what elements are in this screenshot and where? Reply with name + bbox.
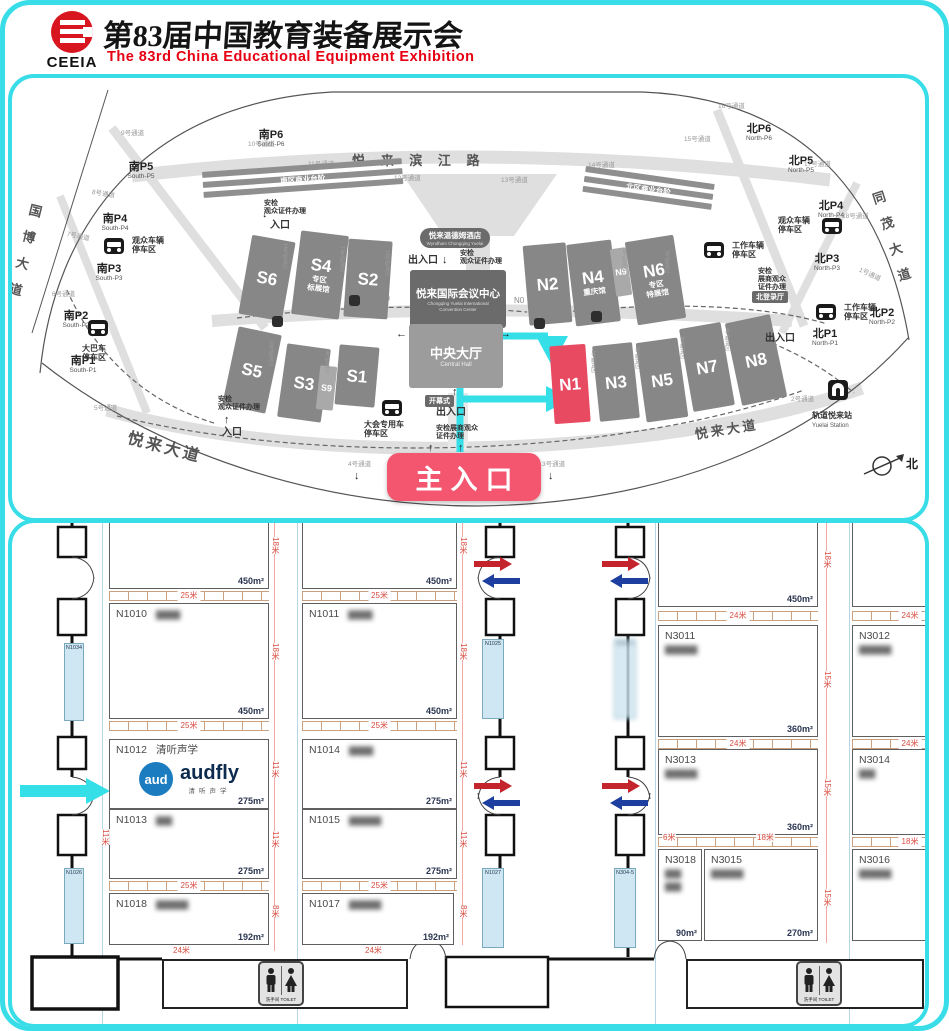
shuttle-stop-icon: [349, 295, 360, 306]
facility-label: 观众车辆 停车区: [132, 236, 164, 254]
booth-number: N1012: [116, 744, 147, 757]
booth-label-row: N1010▆▆▆: [116, 608, 180, 621]
toilet-sign-divider: [281, 966, 282, 995]
map-item: [267, 975, 276, 985]
direction-arrow: ↓: [262, 208, 268, 221]
booth-N3013: N3013▆▆▆▆360m²: [658, 749, 818, 835]
dimension-label: 18米: [822, 551, 832, 568]
hall-n0-label: N0: [514, 296, 524, 305]
map-item: [707, 252, 711, 256]
booth-label-row: N1017▆▆▆▆: [309, 898, 381, 911]
parking-cn-label: 南P5: [118, 162, 164, 174]
map-hall-n1: N1: [549, 344, 590, 424]
dimension-ticks: 24米: [852, 739, 929, 749]
dimension-label: 25米: [178, 590, 201, 601]
booth-exhibitor-name: ▆▆: [156, 814, 172, 827]
booth-N1013: N1013▆▆275m²: [109, 809, 269, 879]
exhibition-map-page: CEEIA 第83届中国教育装备展示会 The 83rd China Educa…: [0, 0, 949, 1031]
booth-exhibitor-name: ▆▆▆▆: [665, 643, 697, 656]
booth-exhibitor-name: ▆▆▆▆: [156, 898, 188, 911]
hall-id-label: S3: [293, 373, 316, 393]
map-item: [819, 308, 833, 313]
booth-N3014: N3014▆▆: [852, 749, 929, 835]
booth-number: N1018: [116, 898, 147, 911]
booth-area-label: 450m²: [238, 706, 264, 716]
bus-parking-icon: [382, 400, 402, 416]
hall-id-label: N7: [695, 357, 719, 378]
booth-area-label: 192m²: [423, 932, 449, 942]
dimension-label: 25米: [178, 880, 201, 891]
venue-overview-map: S6S4专区 标展馆S2S5S3S9S1N2N4重庆馆N9N6专区 特展馆N1N…: [8, 74, 929, 522]
dimension-label: 15米: [822, 779, 832, 796]
direction-arrow: ↓: [548, 470, 554, 483]
dimension-ticks: 24米: [658, 739, 818, 749]
booth-exhibitor-name: ▆▆▆▆: [859, 643, 891, 656]
parking-north-p3: 北P3North-P3: [804, 254, 850, 272]
booth-exhibitor-name: ▆▆▆: [349, 744, 373, 757]
road-guobo-avenue: 国博大道: [8, 202, 42, 310]
dimension-label: 25米: [368, 880, 391, 891]
booth-label-row: N3014▆▆: [859, 754, 890, 780]
booth-label-row: N3015▆▆▆▆: [711, 854, 743, 880]
booth-number: N3013: [665, 754, 697, 767]
wall-booth-n304-4: N304-4: [614, 639, 636, 719]
booth-area-label: 450m²: [426, 576, 452, 586]
map-item: [101, 330, 105, 334]
bus-parking-icon: [816, 304, 836, 320]
dimension-label: 11米: [270, 831, 280, 847]
channel-label: 8号通道: [91, 186, 116, 200]
female-icon: [285, 968, 297, 992]
bus-parking-icon: [104, 238, 124, 254]
booth-number: N3014: [859, 754, 890, 767]
dimension-label: 8米: [270, 905, 280, 917]
dimension-label: 24米: [899, 610, 922, 621]
map-item: [268, 985, 275, 992]
channel-label: 2号通道: [791, 393, 814, 403]
parking-cn-label: 南P4: [92, 214, 138, 226]
map-item: [825, 222, 839, 227]
security-label: 安检 观众证件办理: [218, 396, 260, 412]
parking-cn-label: 北P6: [736, 124, 782, 136]
hall-n1-n3-floorplan: 450m²N1010▆▆▆450m²N1012清听声学audaudfly清听声学…: [8, 519, 929, 1028]
parking-north-p1: 北P1North-P1: [802, 329, 848, 347]
parking-cn-label: 南P3: [86, 264, 132, 276]
channel-label: 1号通道: [858, 264, 883, 283]
booth-exhibitor-name: ▆▆▆▆: [665, 767, 697, 780]
shuttle-stop-icon: [591, 311, 602, 322]
unload-zone-label: 9号卸货区: [324, 350, 331, 373]
page-subtitle: The 83rd China Educational Equipment Exh…: [107, 49, 475, 65]
map-item: [826, 968, 832, 974]
parking-north-p6: 北P6North-P6: [736, 124, 782, 142]
booth-number: N1017: [309, 898, 340, 911]
shuttle-stop-icon: [534, 318, 545, 329]
male-icon: [265, 968, 277, 992]
dimension-ticks: 18米: [852, 837, 929, 847]
dimension-label: 18米: [458, 537, 468, 554]
unload-zone-label: 3号卸货区: [679, 336, 686, 359]
hall-id-label: S5: [240, 360, 264, 381]
direction-arrow: ↓: [442, 254, 448, 267]
male-icon: [803, 968, 815, 992]
channel-label: 15号通道: [684, 133, 711, 143]
commercial-steps-north: 北区商业台阶: [582, 166, 715, 214]
unload-zone-label: 5号卸货区: [621, 248, 628, 271]
audfly-logo-text: audfly清听声学: [180, 763, 239, 795]
booth-area-label: 270m²: [787, 928, 813, 938]
facility-en-label: Yuelai Station: [812, 423, 849, 430]
toilet-label: 洗手间 TOILET: [798, 997, 840, 1003]
booth-N3015: N3015▆▆▆▆270m²: [704, 849, 818, 941]
bus-parking-icon: [822, 218, 842, 234]
booth-number: N1011: [309, 608, 339, 621]
facility-label: 轨道悦来站: [812, 411, 852, 420]
parking-south-p5: 南P5South-P5: [118, 162, 164, 180]
security-label: 安检 观众证件办理: [460, 250, 502, 266]
parking-en-label: South-P1: [60, 368, 106, 375]
parking-south-p4: 南P4South-P4: [92, 214, 138, 232]
dimension-label: 24米: [727, 738, 750, 749]
hall-s0-label: S0: [380, 294, 390, 303]
map-item: [395, 410, 399, 414]
hall-id-label: N3: [604, 372, 627, 391]
security-label: 安检展商观众 证件办理: [436, 425, 478, 441]
dimension-ticks: [658, 837, 818, 847]
booth-edge: [852, 523, 929, 607]
toilet-sign: 洗手间 TOILET: [796, 961, 842, 1006]
hall-id-label: S2: [357, 270, 379, 288]
booth-edge: 450m²: [658, 523, 818, 607]
dimension-ticks: 25米: [302, 721, 457, 731]
dimension-label: 18米: [899, 836, 922, 847]
channel-label: 7号通道: [66, 228, 91, 243]
entrance-label: 入口: [222, 427, 242, 439]
north-login-hall-tag: 北登录厅: [752, 291, 788, 303]
audfly-brand-label: audfly: [180, 763, 239, 783]
booth-exhibitor-name: ▆▆▆▆: [349, 898, 381, 911]
metro-station-icon: [828, 380, 848, 400]
ceeia-logo-icon: [51, 11, 93, 53]
hall-id-label: N1: [559, 375, 582, 393]
parking-en-label: South-P4: [92, 226, 138, 233]
dimension-label: 25米: [368, 590, 391, 601]
direction-arrow: ↑: [224, 414, 230, 427]
channel-label: 3号通道: [542, 458, 565, 468]
booth-label-row: N1018▆▆▆▆: [116, 898, 188, 911]
booth-label-row: N1014▆▆▆: [309, 744, 373, 757]
map-hall-n2: N2: [523, 242, 573, 325]
booth-N3016: N3016▆▆▆▆: [852, 849, 929, 941]
unload-zone-label: 10号卸货区: [268, 340, 275, 366]
map-item: [829, 314, 833, 318]
map-item: [91, 330, 95, 334]
booth-label-row: N1011▆▆▆: [309, 608, 372, 621]
booth-label-row: N3011▆▆▆▆: [665, 630, 697, 656]
booth-label-row: N1012清听声学: [116, 744, 198, 757]
map-item: [288, 968, 294, 974]
dimension-ticks: 25米: [302, 881, 457, 891]
unload-zone-label: 14号卸货区: [282, 243, 289, 269]
dimension-label: 11米: [458, 831, 468, 847]
booth-N1011: N1011▆▆▆450m²: [302, 603, 457, 719]
booth-area-label: 450m²: [426, 706, 452, 716]
channel-label: 5号通道: [94, 402, 117, 412]
dimension-label: 24米: [899, 738, 922, 749]
booth-area-label: 192m²: [238, 932, 264, 942]
parking-en-label: North-P1: [802, 341, 848, 348]
gate-label: 出入口: [436, 407, 466, 419]
dimension-label: 11米: [458, 761, 468, 777]
dimension-ticks: 25米: [109, 881, 269, 891]
booth-edge: 450m²: [302, 523, 457, 589]
parking-south-p3: 南P3South-P3: [86, 264, 132, 282]
dimension-label: 8米: [458, 905, 468, 917]
dimension-label: 24米: [364, 947, 383, 955]
dimension-label: 18米: [458, 643, 468, 660]
map-item: [707, 246, 721, 251]
map-item: [806, 985, 813, 992]
booth-N1015: N1015▆▆▆▆275m²: [302, 809, 457, 879]
map-item: [825, 228, 829, 232]
map-item: [91, 324, 105, 329]
map-item: [806, 968, 812, 974]
booth-label-row: N1015▆▆▆▆: [309, 814, 381, 827]
map-item: [107, 242, 121, 247]
booth-N3018: N3018▆▆ ▆▆90m²: [658, 849, 702, 941]
bus-parking-icon: [704, 242, 724, 258]
central-hall-block: 中央大厅 Central Hall: [409, 324, 503, 388]
direction-arrow: ↓: [354, 470, 360, 483]
map-item: [385, 404, 399, 409]
unload-zone-label: 1号卸货区: [590, 350, 597, 373]
header: CEEIA 第83届中国教育装备展示会 The 83rd China Educa…: [5, 5, 944, 75]
booth-exhibitor-name: ▆▆: [859, 767, 890, 780]
map-item: [268, 968, 274, 974]
booth-N1018: N1018▆▆▆▆192m²: [109, 893, 269, 945]
ceeia-logo-text: CEEIA: [37, 54, 107, 71]
bus-parking-icon: [88, 320, 108, 336]
booth-label-row: N1013▆▆: [116, 814, 172, 827]
wall-booth-n1034: N1034: [64, 643, 84, 721]
dimension-ticks: 24米: [852, 611, 929, 621]
channel-label: 4号通道: [348, 458, 371, 468]
hall-sub-label: 专区 标展馆: [307, 274, 331, 294]
booth-area-label: 450m²: [787, 594, 813, 604]
hall-sub-label: 专区 特展馆: [645, 279, 670, 300]
booth-label-row: N3012▆▆▆▆: [859, 630, 891, 656]
booth-N3011: N3011▆▆▆▆360m²: [658, 625, 818, 737]
parking-en-label: North-P6: [736, 136, 782, 143]
hall-id-label: S6: [255, 268, 278, 288]
dimension-label: 11米: [100, 829, 110, 845]
hall-id-label: N6: [642, 260, 666, 280]
map-item: [717, 252, 721, 256]
parking-cn-label: 北P1: [802, 329, 848, 341]
channel-label: 6号通道: [52, 288, 75, 298]
parking-en-label: South-P3: [86, 276, 132, 283]
gate-label: 出入口: [765, 333, 795, 345]
booth-label-row: N3013▆▆▆▆: [665, 754, 697, 780]
road-yuelai-avenue-west: 悦来大道: [125, 430, 203, 467]
booth-area-label: 90m²: [676, 928, 697, 938]
booth-exhibitor-name: ▆▆▆: [156, 608, 180, 621]
booth-area-label: 275m²: [426, 796, 452, 806]
map-item: [385, 410, 389, 414]
booth-exhibitor-name: ▆▆▆: [348, 608, 372, 621]
booth-exhibitor-name: 清听声学: [156, 744, 198, 757]
unload-zone-label: 4号卸货区: [724, 328, 731, 351]
parking-en-label: North-P5: [778, 168, 824, 175]
booth-number: N1013: [116, 814, 147, 827]
booth-number: N1014: [309, 744, 340, 757]
dimension-label: 15米: [822, 671, 832, 688]
map-item: [805, 975, 814, 985]
wall-booth-n1025: N1025: [482, 639, 504, 719]
unload-zone-label: 13号卸货区: [339, 246, 346, 272]
security-label: 安检 观众证件办理: [264, 200, 306, 216]
map-item: [835, 228, 839, 232]
channel-label: 13号通道: [501, 174, 528, 184]
toilet-sign: 洗手间 TOILET: [258, 961, 304, 1006]
toilet-sign-divider: [819, 966, 820, 995]
booth-label-row: N3016▆▆▆▆: [859, 854, 891, 880]
booth-N3012: N3012▆▆▆▆: [852, 625, 929, 737]
unload-zone-label: 7号卸货区: [664, 250, 671, 273]
booth-number: N3011: [665, 630, 697, 643]
audfly-sub-label: 清听声学: [189, 785, 231, 795]
dimension-ticks: 25米: [109, 721, 269, 731]
audfly-logo: audaudfly清听声学: [139, 762, 239, 796]
parking-en-label: North-P3: [804, 266, 850, 273]
hall-id-label: S1: [346, 367, 368, 386]
channel-label: 10号通道: [248, 138, 275, 148]
wall-booth-n1027: N1027: [482, 868, 504, 948]
commercial-steps-south: 南区商业台阶: [202, 158, 404, 202]
main-entrance-badge: 主入口: [387, 453, 541, 501]
hall-id-label: S9: [321, 383, 333, 393]
booth-exhibitor-name: ▆▆▆▆: [711, 867, 743, 880]
booth-exhibitor-name: ▆▆▆▆: [349, 814, 381, 827]
facility-label: 工作车辆 停车区: [844, 303, 876, 321]
shuttle-stop-icon: [272, 316, 283, 327]
dimension-label: 18米: [270, 643, 280, 660]
map-item: [107, 248, 111, 252]
booth-area-label: 275m²: [238, 796, 264, 806]
convention-center-block: 悦来国际会议中心 Chongqing Yuelai International …: [410, 270, 506, 328]
dimension-label: 18米: [756, 834, 775, 842]
map-item: [288, 985, 295, 992]
dimension-ticks: 25米: [109, 591, 269, 601]
female-icon: [823, 968, 835, 992]
unload-zone-label: 12号卸货区: [384, 250, 391, 276]
dimension-label: 18米: [270, 537, 280, 554]
parking-cn-label: 北P3: [804, 254, 850, 266]
booth-number: N1015: [309, 814, 340, 827]
wall-booth-n1026: N1026: [64, 868, 84, 944]
booth-exhibitor-name: ▆▆ ▆▆: [665, 867, 696, 893]
security-label: 安检 展商观众 证件办理: [758, 268, 786, 292]
facility-label: 大会专用车 停车区: [364, 420, 404, 438]
dimension-label: 25米: [178, 720, 201, 731]
map-item: [836, 388, 840, 396]
facility-label: 观众车辆 停车区: [778, 216, 810, 234]
dimension-label: 11米: [270, 761, 280, 777]
booth-area-label: 450m²: [238, 576, 264, 586]
wall-booth-n304-5: N304-5: [614, 868, 636, 948]
booth-number: N1010: [116, 608, 147, 621]
booth-number: N3015: [711, 854, 743, 867]
booth-N1017: N1017▆▆▆▆192m²: [302, 893, 454, 945]
booth-area-label: 275m²: [426, 866, 452, 876]
map-item: [117, 248, 121, 252]
booth-number: N3012: [859, 630, 891, 643]
hall-id-label: N5: [650, 370, 674, 390]
channel-label: 17号通道: [804, 158, 831, 168]
booth-N1012: N1012清听声学audaudfly清听声学275m²: [109, 739, 269, 809]
entrance-label: 入口: [270, 220, 290, 232]
booth-label-row: N3018▆▆ ▆▆: [665, 854, 696, 893]
facility-label: 大巴车 停车区: [82, 344, 106, 362]
channel-label: 18号通道: [842, 210, 869, 220]
dimension-label: 25米: [368, 720, 391, 731]
audfly-logo-icon: aud: [139, 762, 173, 796]
dimension-label: 6米: [662, 834, 676, 842]
unload-zone-label: 2号卸货区: [634, 346, 641, 369]
dimension-label: 15米: [822, 889, 832, 906]
hall-id-label: S4: [310, 256, 333, 275]
ceeia-logo: CEEIA: [37, 11, 107, 71]
map-hall-n6: N6专区 特展馆: [625, 235, 687, 326]
booth-number: N3018: [665, 854, 696, 867]
hotel-block: 悦来温德姆酒店 Wyndham Chongqing Yuelai: [420, 228, 490, 248]
hall-id-label: N4: [581, 268, 605, 288]
booth-edge: 450m²: [109, 523, 269, 589]
map-hall-n8: N8: [725, 314, 787, 406]
booth-area-label: 275m²: [238, 866, 264, 876]
parking-en-label: South-P5: [118, 174, 164, 181]
booth-exhibitor-name: ▆▆▆▆: [859, 867, 891, 880]
hall-id-label: N2: [536, 275, 559, 294]
booth-area-label: 360m²: [787, 822, 813, 832]
channel-label: 9号通道: [121, 127, 144, 137]
direction-arrow: ←: [396, 328, 407, 341]
booth-N1010: N1010▆▆▆450m²: [109, 603, 269, 719]
booth-area-label: 360m²: [787, 724, 813, 734]
map-hall-n3: N3: [592, 342, 640, 422]
dimension-label: 24米: [172, 947, 191, 955]
facility-label: 工作车辆 停车区: [732, 241, 764, 259]
booth-number: N3016: [859, 854, 891, 867]
dimension-ticks: 25米: [302, 591, 457, 601]
road-yuelai-avenue-east: 悦来大道: [694, 418, 760, 443]
booth-N1014: N1014▆▆▆275m²: [302, 739, 457, 809]
dimension-ticks: 24米: [658, 611, 818, 621]
hall-id-label: N8: [744, 349, 769, 370]
hall-sub-label: 重庆馆: [583, 287, 606, 298]
toilet-label: 洗手间 TOILET: [260, 997, 302, 1003]
map-item: [819, 314, 823, 318]
map-hall-s1: S1: [334, 344, 379, 407]
gate-label: 出入口: [408, 255, 438, 267]
dimension-label: 24米: [727, 610, 750, 621]
map-hall-s4: S4专区 标展馆: [291, 230, 349, 319]
channel-label: 16号通道: [718, 100, 745, 110]
compass-north-label: 北: [906, 458, 918, 472]
map-item: [826, 985, 833, 992]
opening-ceremony-tag: 开幕式: [425, 395, 454, 407]
